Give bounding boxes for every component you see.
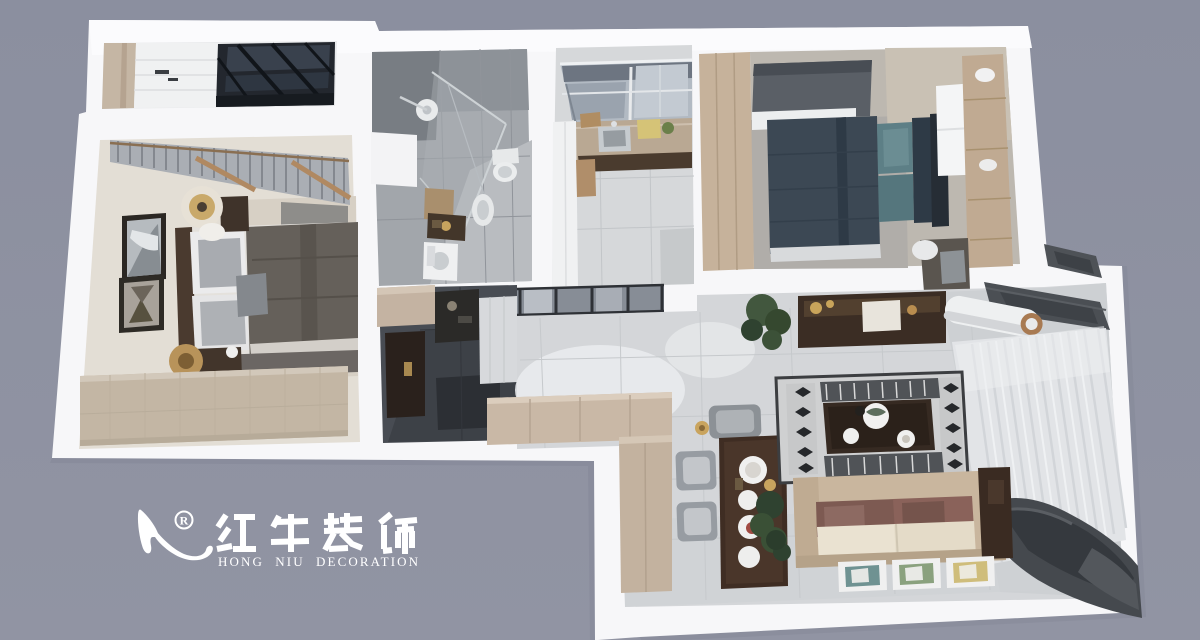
- svg-text:HONG NIU DECORATION: HONG NIU DECORATION: [218, 554, 420, 569]
- svg-text:R: R: [180, 514, 189, 528]
